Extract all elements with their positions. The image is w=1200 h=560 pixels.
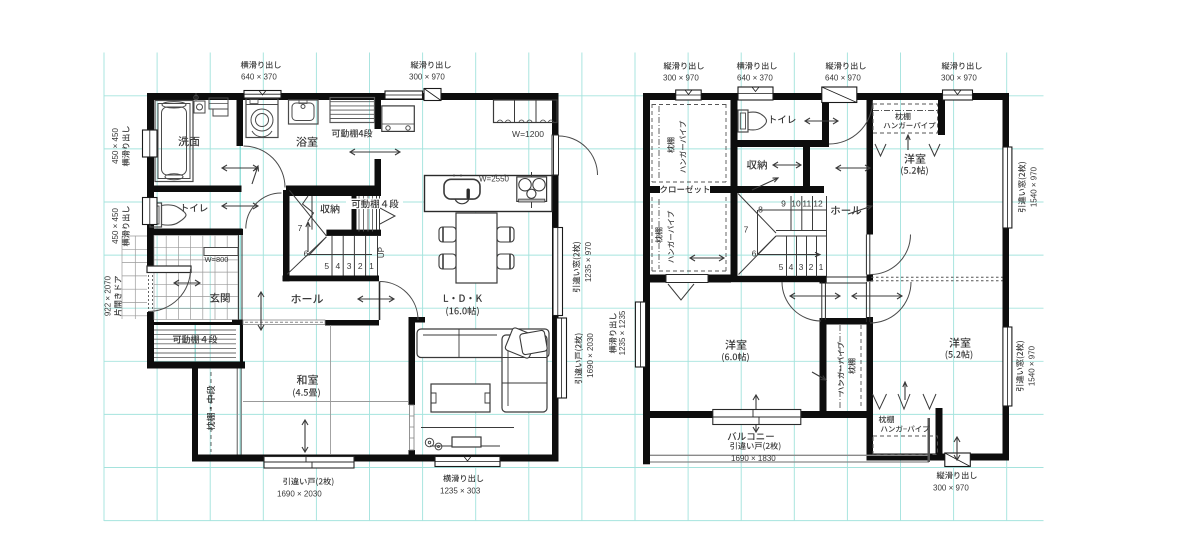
svg-text:640 × 370: 640 × 370 bbox=[241, 72, 277, 81]
svg-text:W=800: W=800 bbox=[205, 255, 229, 264]
svg-text:3: 3 bbox=[799, 262, 804, 272]
svg-text:2: 2 bbox=[809, 262, 814, 272]
svg-text:300 × 970: 300 × 970 bbox=[409, 72, 445, 81]
svg-text:4: 4 bbox=[789, 262, 794, 272]
svg-text:1235 × 303: 1235 × 303 bbox=[440, 486, 481, 495]
svg-text:3: 3 bbox=[347, 261, 352, 271]
svg-text:450 × 450: 450 × 450 bbox=[111, 208, 120, 244]
svg-text:1540 × 970: 1540 × 970 bbox=[1027, 345, 1036, 386]
svg-text:1540 × 970: 1540 × 970 bbox=[1029, 166, 1038, 207]
svg-text:8: 8 bbox=[758, 205, 763, 215]
svg-text:922 × 2070: 922 × 2070 bbox=[103, 275, 112, 316]
svg-text:1235 × 970: 1235 × 970 bbox=[584, 241, 593, 282]
svg-text:4: 4 bbox=[336, 261, 341, 271]
svg-text:11: 11 bbox=[802, 199, 811, 209]
svg-text:300 × 970: 300 × 970 bbox=[663, 73, 699, 82]
svg-text:1690 × 2030: 1690 × 2030 bbox=[277, 489, 322, 498]
svg-text:640 × 370: 640 × 370 bbox=[737, 73, 773, 82]
svg-text:1235 × 1235: 1235 × 1235 bbox=[618, 310, 627, 355]
svg-text:1: 1 bbox=[369, 261, 374, 271]
svg-text:2: 2 bbox=[358, 261, 363, 271]
svg-text:450 × 450: 450 × 450 bbox=[111, 128, 120, 164]
svg-text:10: 10 bbox=[791, 199, 801, 209]
svg-text:300 × 970: 300 × 970 bbox=[933, 483, 969, 492]
svg-text:7: 7 bbox=[744, 225, 749, 235]
svg-text:12: 12 bbox=[813, 199, 823, 209]
svg-text:1690 × 1830: 1690 × 1830 bbox=[731, 454, 776, 463]
svg-text:W=1200: W=1200 bbox=[512, 129, 544, 139]
svg-text:1: 1 bbox=[819, 262, 824, 272]
svg-text:1690 × 2030: 1690 × 2030 bbox=[586, 333, 595, 378]
svg-text:5: 5 bbox=[779, 262, 784, 272]
svg-text:UP: UP bbox=[377, 247, 386, 258]
svg-text:9: 9 bbox=[781, 199, 786, 209]
svg-text:300 × 970: 300 × 970 bbox=[941, 73, 977, 82]
svg-text:640 × 970: 640 × 970 bbox=[825, 73, 861, 82]
svg-text:6: 6 bbox=[752, 249, 757, 259]
svg-text:7: 7 bbox=[298, 223, 303, 233]
svg-text:5: 5 bbox=[324, 261, 329, 271]
